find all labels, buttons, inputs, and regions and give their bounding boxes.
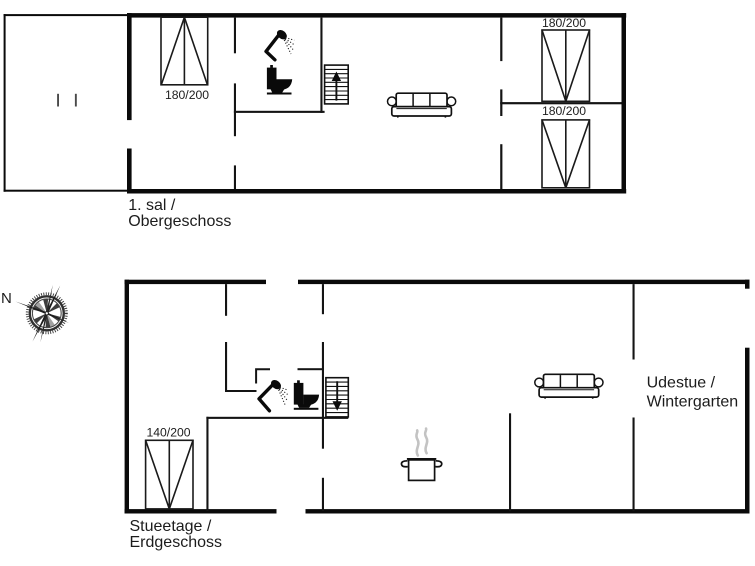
svg-text:180/200: 180/200 [542, 16, 586, 30]
svg-text:Erdgeschoss: Erdgeschoss [130, 534, 223, 551]
svg-text:1. sal /: 1. sal / [128, 197, 176, 214]
svg-text:Udestue /: Udestue / [647, 374, 716, 391]
svg-text:180/200: 180/200 [542, 104, 586, 118]
svg-text:180/200: 180/200 [165, 88, 209, 102]
svg-text:Stueetage /: Stueetage / [130, 518, 212, 535]
svg-text:N: N [1, 290, 12, 307]
svg-text:Obergeschoss: Obergeschoss [128, 213, 231, 230]
svg-text:Wintergarten: Wintergarten [647, 394, 739, 411]
svg-text:140/200: 140/200 [146, 425, 190, 439]
